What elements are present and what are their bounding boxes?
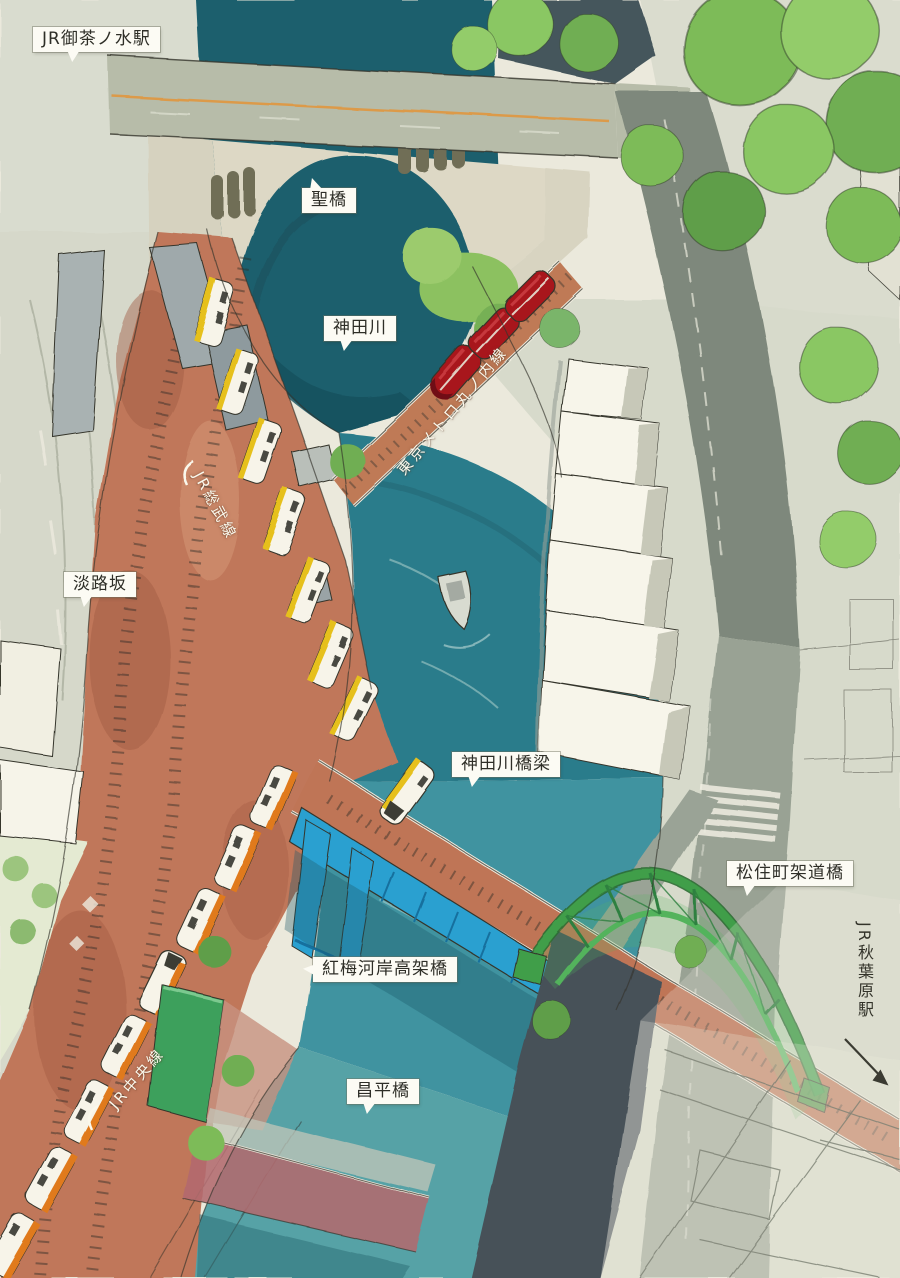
label-shoheibashi: 昌平橋 — [347, 1079, 419, 1104]
label-awajizaka: 淡路坂 — [64, 572, 136, 597]
label-ochanomizu-station: JR御茶ノ水駅 — [33, 27, 160, 52]
illustrated-map-ochanomizu: JR御茶ノ水駅 聖橋 神田川 淡路坂 神田川橋梁 松住町架道橋 紅梅河岸高架橋 … — [0, 0, 900, 1278]
label-kandagawa-bridge: 神田川橋梁 — [452, 752, 560, 777]
label-kobai-kashi-viaduct: 紅梅河岸高架橋 — [313, 957, 457, 982]
label-akihabara-station: JR秋葉原駅 — [852, 922, 876, 1020]
label-kandagawa: 神田川 — [324, 316, 396, 341]
label-hijiribashi: 聖橋 — [302, 188, 356, 213]
label-matsuzumicho-bridge: 松住町架道橋 — [727, 861, 853, 886]
